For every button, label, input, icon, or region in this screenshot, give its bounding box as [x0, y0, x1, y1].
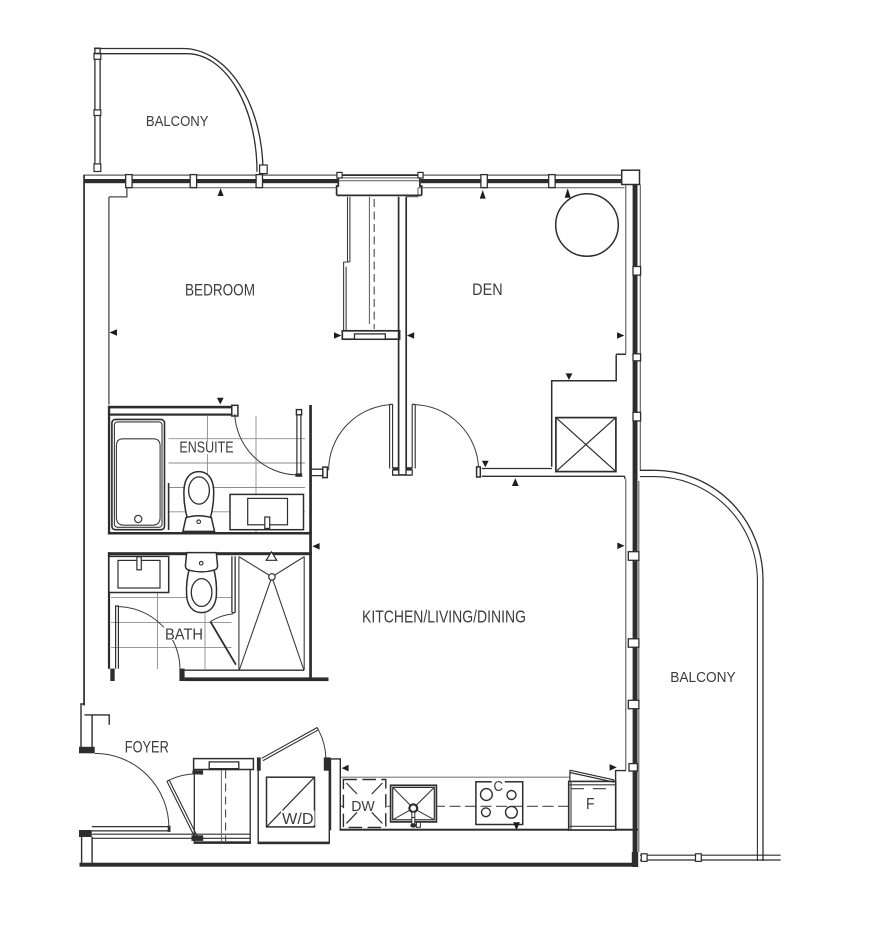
svg-text:BATH: BATH [165, 627, 203, 644]
svg-text:BEDROOM: BEDROOM [185, 282, 255, 300]
svg-text:KITCHEN/LIVING/DINING: KITCHEN/LIVING/DINING [362, 606, 526, 626]
svg-text:BALCONY: BALCONY [670, 669, 735, 686]
svg-text:DW: DW [351, 798, 375, 815]
svg-text:BALCONY: BALCONY [146, 113, 209, 130]
svg-text:DEN: DEN [472, 281, 503, 299]
svg-text:C: C [494, 779, 504, 795]
svg-text:ENSUITE: ENSUITE [179, 439, 233, 456]
svg-text:W/D: W/D [282, 811, 314, 828]
svg-text:FOYER: FOYER [125, 738, 169, 756]
svg-text:F: F [586, 796, 595, 813]
